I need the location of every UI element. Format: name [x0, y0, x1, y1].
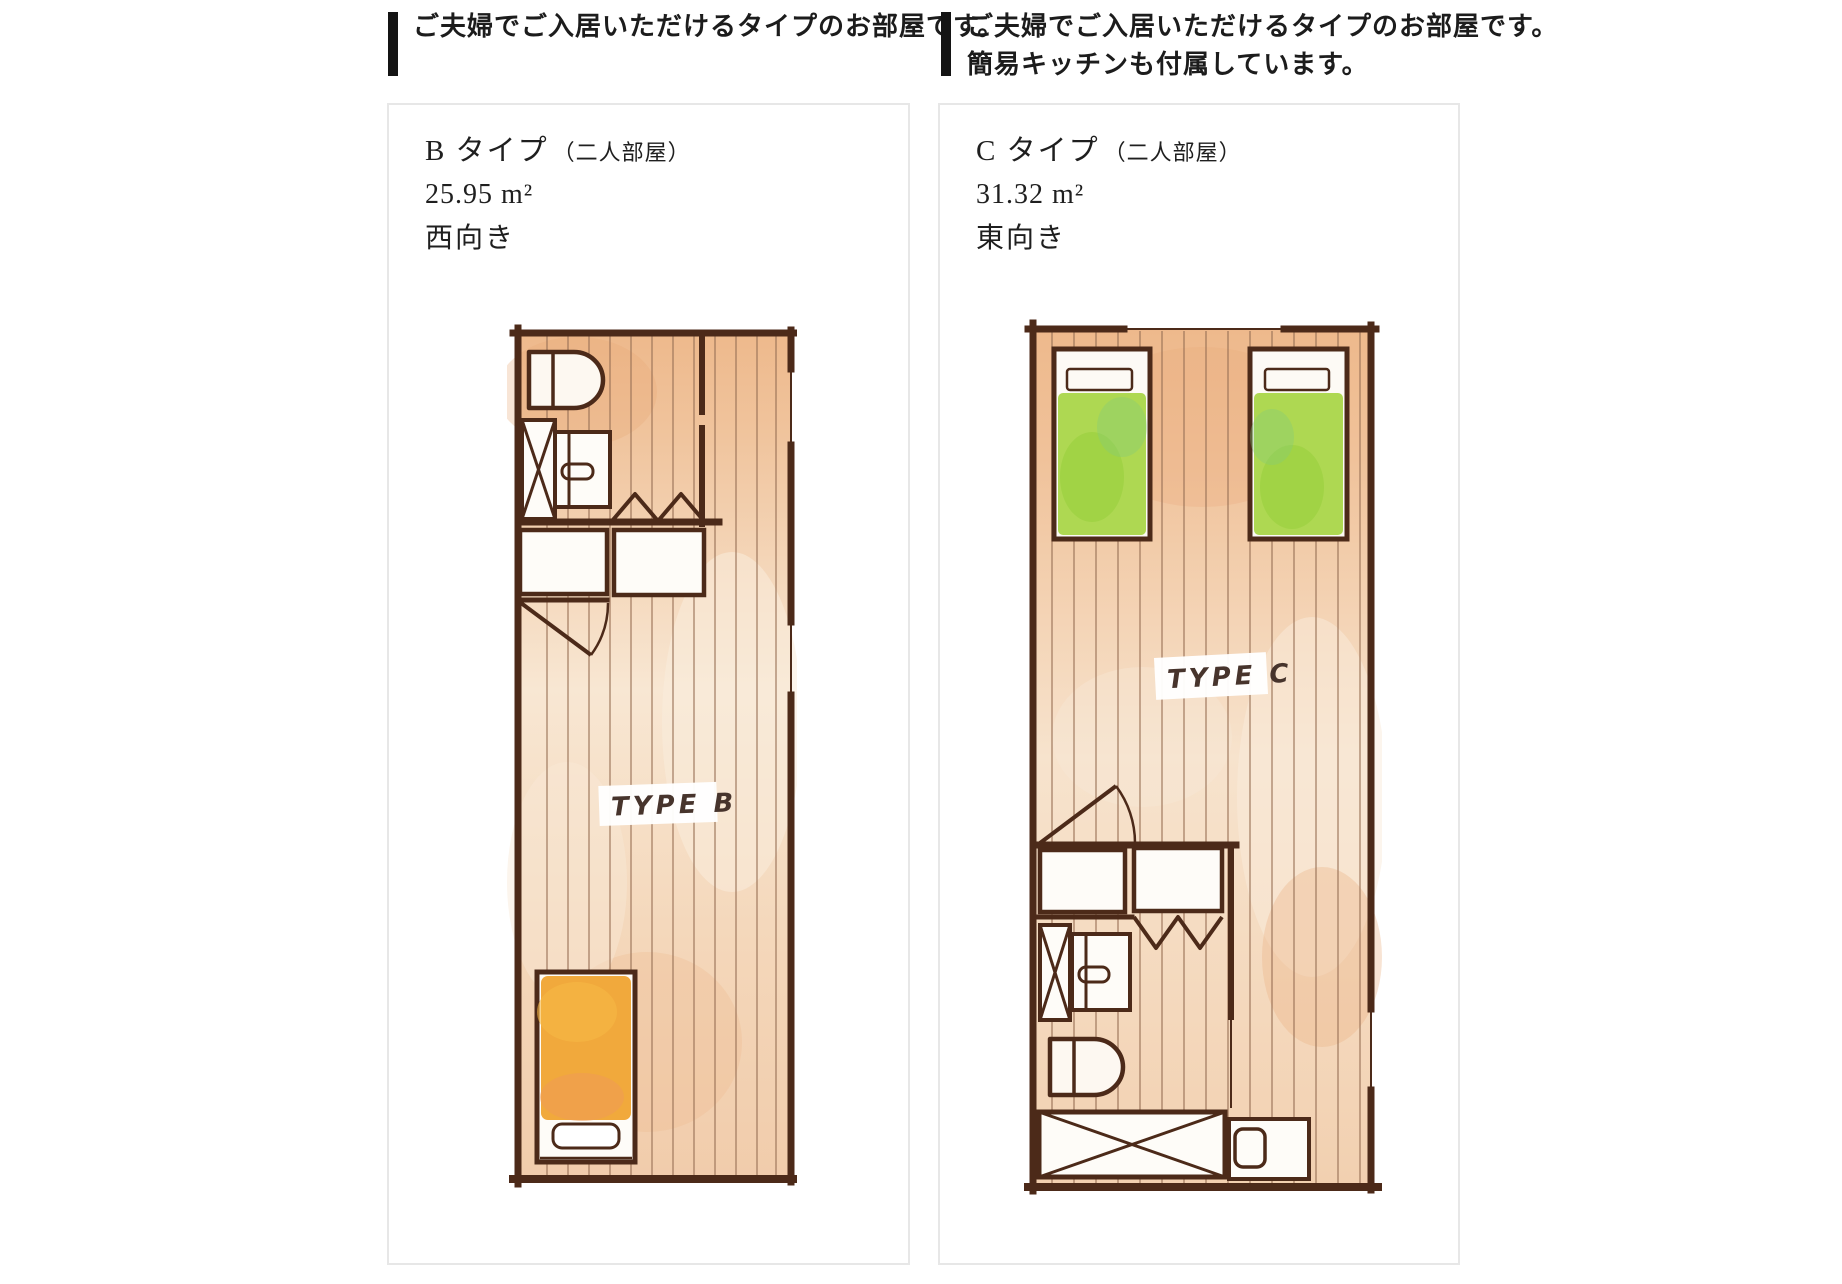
floor-plan-b: TYPE B [507, 322, 797, 1192]
caption-right-line1: ご夫婦でご入居いただけるタイプのお部屋です。 [967, 8, 1558, 46]
bed-right-c [1250, 349, 1347, 539]
plan-label-b: TYPE B [611, 788, 738, 822]
counter-units-b [520, 530, 704, 595]
washing-machine-b [522, 420, 555, 519]
type-name-b: B タイプ （二人部屋） [425, 129, 691, 173]
caption-right-line2: 簡易キッチンも付属しています。 [967, 46, 1558, 84]
appliance-box-c [1229, 1119, 1309, 1179]
accent-bar-left [388, 12, 398, 76]
caption-left: ご夫婦でご入居いただけるタイプのお部屋です。 [413, 8, 1004, 46]
vanity-sink-b [555, 432, 610, 507]
plan-label-box-b: TYPE B [598, 781, 738, 826]
floor-plan-c: TYPE C [1022, 317, 1382, 1197]
type-label-c: C タイプ [976, 135, 1100, 167]
area-c: 31.32 m² [976, 173, 1242, 217]
room-card-type-b: B タイプ （二人部屋） 25.95 m² 西向き [387, 103, 910, 1265]
facing-c: 東向き [976, 217, 1242, 261]
closet-c [1039, 1112, 1225, 1177]
area-b: 25.95 m² [425, 173, 691, 217]
occupancy-note-c: （二人部屋） [1104, 140, 1242, 165]
washing-machine-c [1040, 925, 1070, 1020]
caption-left-line1: ご夫婦でご入居いただけるタイプのお部屋です。 [413, 8, 1004, 46]
bed-left-c [1054, 349, 1150, 539]
facing-b: 西向き [425, 217, 691, 261]
occupancy-note-b: （二人部屋） [553, 140, 691, 165]
toilet-c [1050, 1039, 1123, 1095]
toilet-b [529, 352, 603, 408]
bed-b [537, 972, 635, 1162]
room-title-b: B タイプ （二人部屋） 25.95 m² 西向き [425, 129, 691, 261]
room-card-type-c: C タイプ （二人部屋） 31.32 m² 東向き [938, 103, 1460, 1265]
caption-right: ご夫婦でご入居いただけるタイプのお部屋です。 簡易キッチンも付属しています。 [967, 8, 1558, 84]
accent-bar-right [941, 12, 951, 76]
type-label-b: B タイプ [425, 135, 549, 167]
vanity-sink-c [1072, 934, 1130, 1010]
room-title-c: C タイプ （二人部屋） 31.32 m² 東向き [976, 129, 1242, 261]
type-name-c: C タイプ （二人部屋） [976, 129, 1242, 173]
